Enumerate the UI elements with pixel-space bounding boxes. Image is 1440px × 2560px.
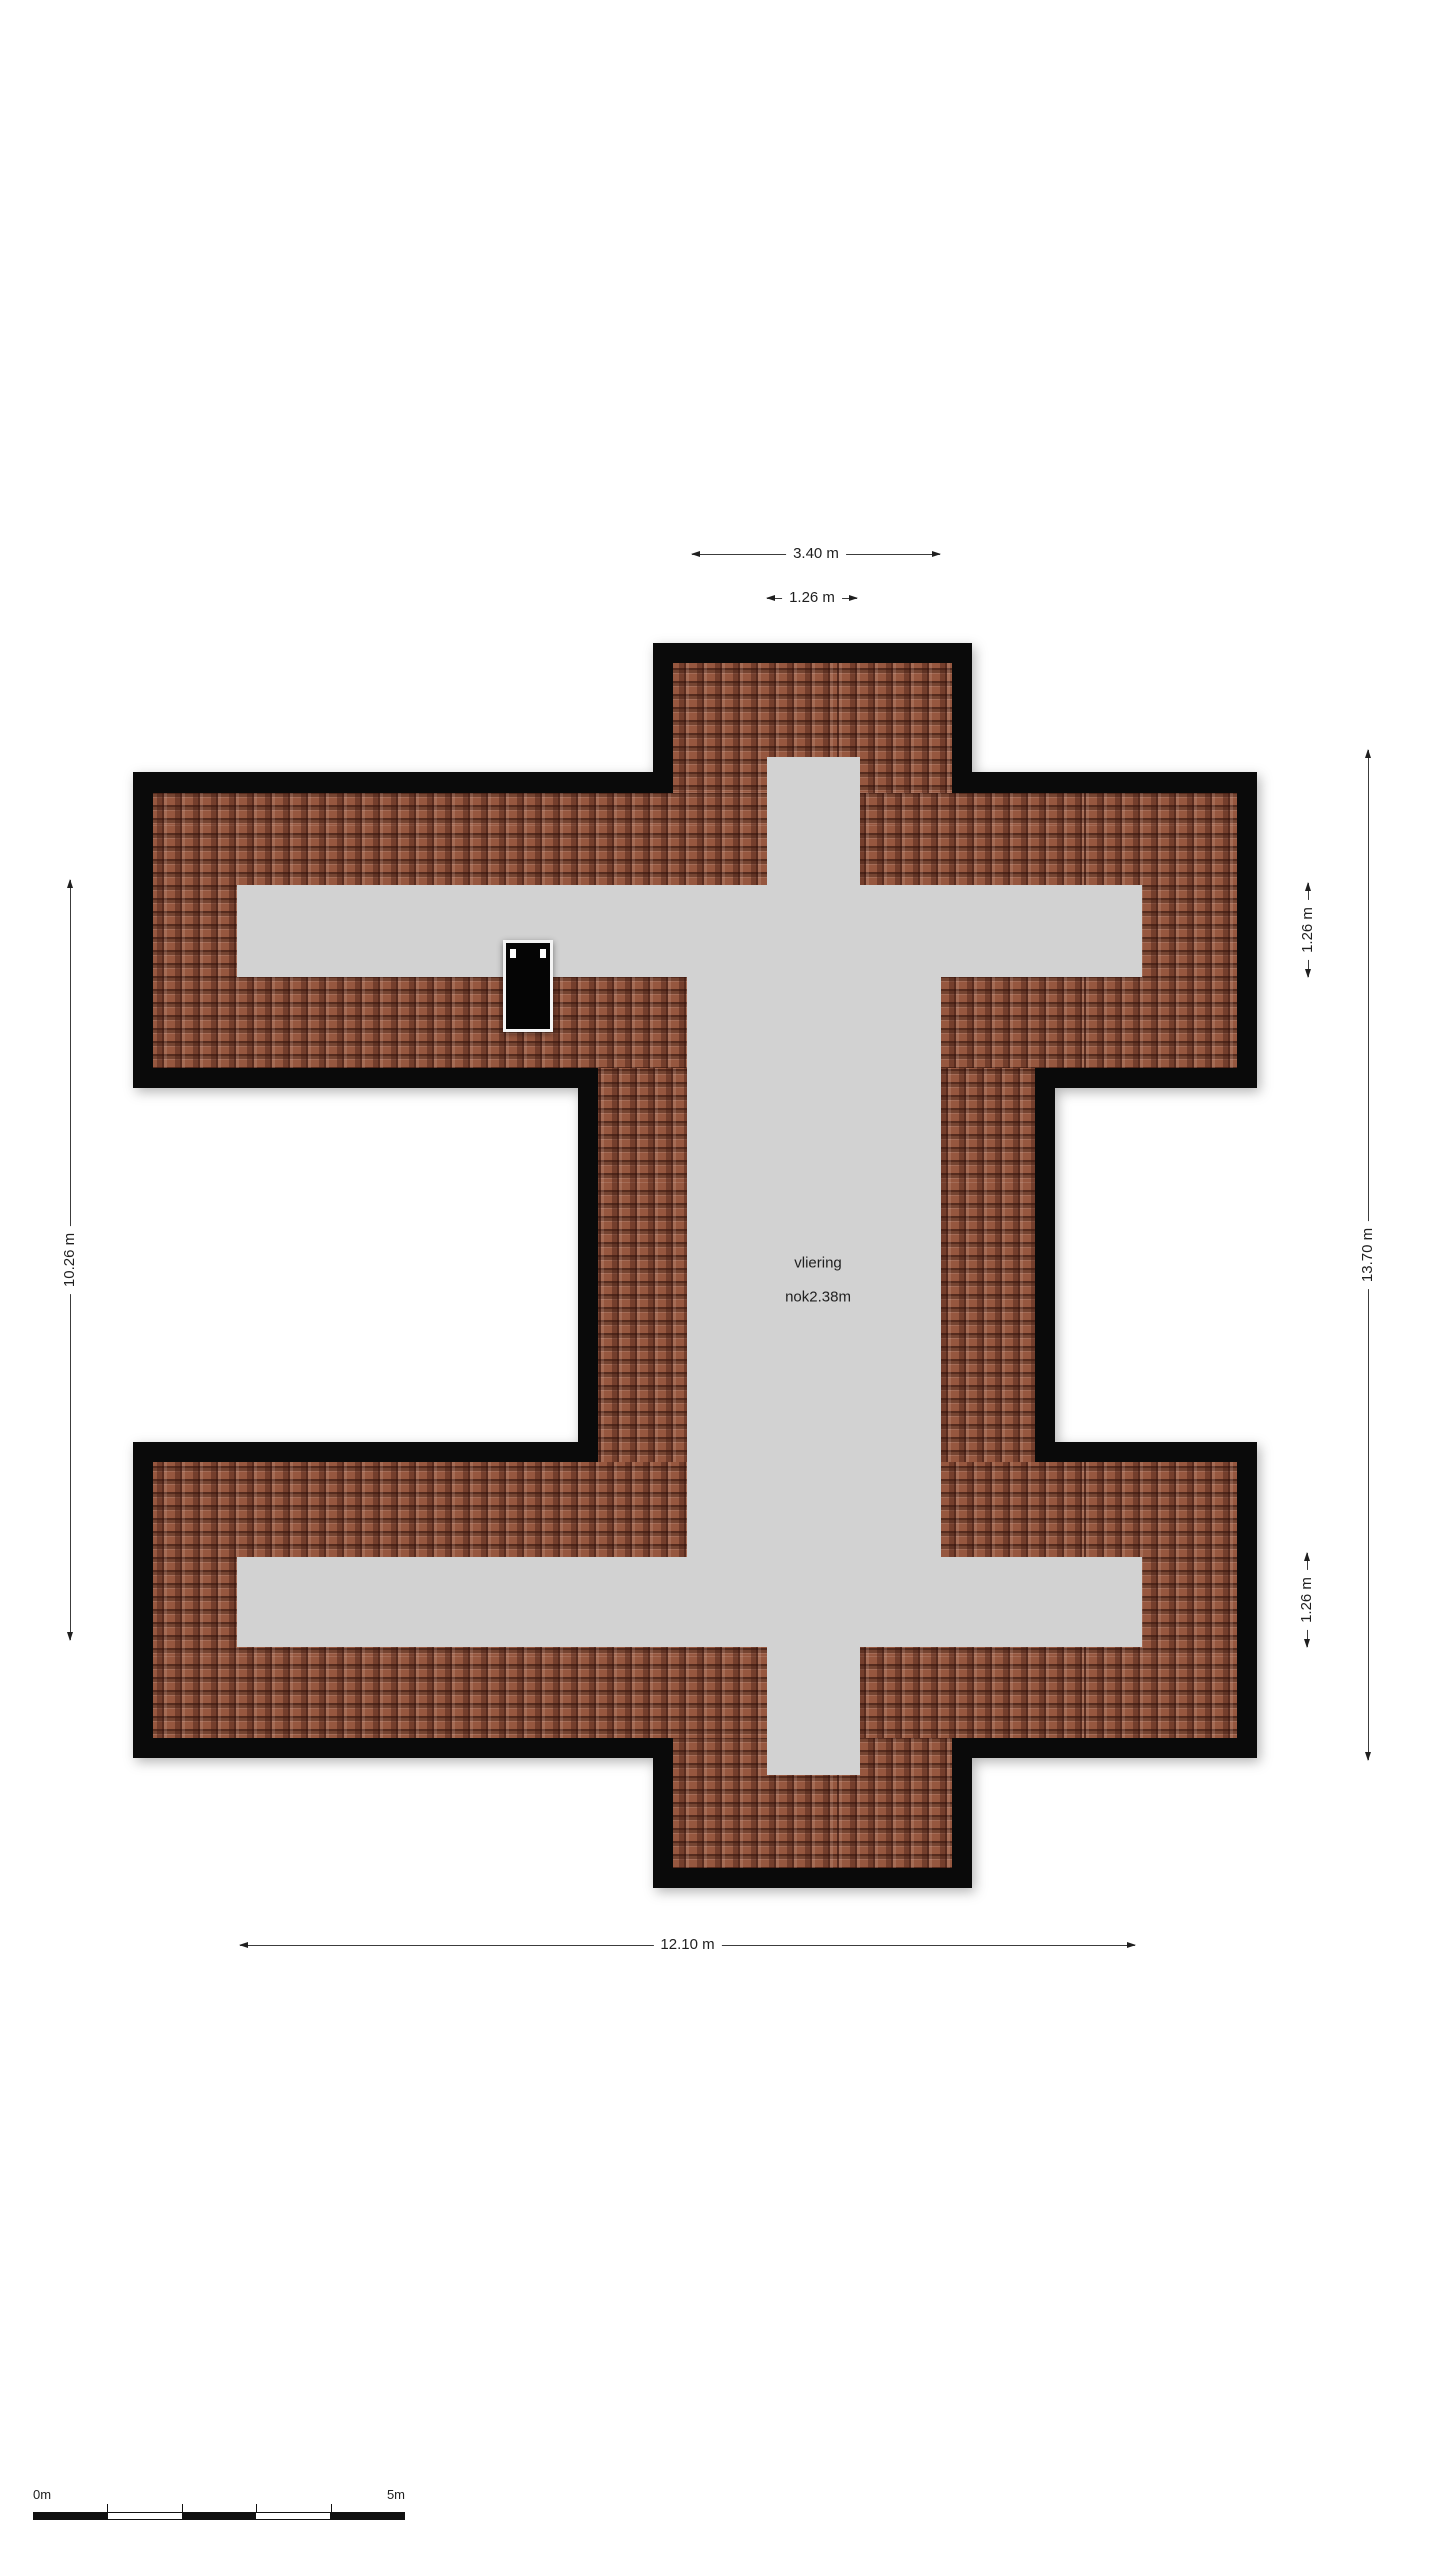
dimension-value: 13.70 m bbox=[1359, 1221, 1377, 1289]
floor-top-stub bbox=[767, 757, 860, 885]
scale-segment bbox=[182, 2513, 256, 2519]
dimension-value: 3.40 m bbox=[786, 545, 846, 563]
room-name-label: vliering bbox=[794, 1255, 842, 1272]
arrowhead-down-icon bbox=[1365, 1752, 1371, 1761]
arrowhead-right-icon bbox=[1127, 1942, 1136, 1948]
scale-segment bbox=[108, 2513, 182, 2519]
dimension-value: 1.26 m bbox=[1299, 900, 1317, 960]
scale-bar-ruler bbox=[33, 2512, 405, 2520]
arrowhead-left-icon bbox=[239, 1942, 248, 1948]
floor-bottom-band bbox=[237, 1557, 1142, 1647]
arrowhead-left-icon bbox=[766, 595, 775, 601]
scale-segment bbox=[256, 2513, 330, 2519]
scale-tick bbox=[107, 2504, 108, 2513]
arrowhead-up-icon bbox=[1365, 749, 1371, 758]
arrowhead-right-icon bbox=[932, 551, 941, 557]
dimension-value: 1.26 m bbox=[782, 589, 842, 607]
scale-segment bbox=[330, 2513, 404, 2519]
arrowhead-left-icon bbox=[691, 551, 700, 557]
scale-segment bbox=[34, 2513, 108, 2519]
ridge-height-label: nok2.38m bbox=[785, 1289, 851, 1306]
floor-plan-canvas: vliering nok2.38m 3.40 m 1.26 m 10.26 m … bbox=[0, 0, 1440, 2560]
roof-window bbox=[503, 940, 553, 1032]
arrowhead-up-icon bbox=[67, 879, 73, 888]
scale-tick bbox=[182, 2504, 183, 2513]
arrowhead-up-icon bbox=[1304, 1552, 1310, 1561]
arrowhead-right-icon bbox=[849, 595, 858, 601]
floor-top-band bbox=[237, 885, 1142, 977]
roof-window-hinge-icon bbox=[510, 949, 516, 958]
floor-bottom-stub bbox=[767, 1647, 860, 1775]
scale-tick bbox=[256, 2504, 257, 2513]
dimension-value: 10.26 m bbox=[61, 1226, 79, 1294]
roof-window-hinge-icon bbox=[540, 949, 546, 958]
arrowhead-down-icon bbox=[67, 1632, 73, 1641]
scale-bar: 0m 5m bbox=[33, 2488, 405, 2522]
arrowhead-down-icon bbox=[1304, 1639, 1310, 1648]
scale-tick bbox=[331, 2504, 332, 2513]
dimension-value: 12.10 m bbox=[653, 1936, 721, 1954]
arrowhead-up-icon bbox=[1305, 882, 1311, 891]
dimension-value: 1.26 m bbox=[1298, 1570, 1316, 1630]
scale-end-label: 5m bbox=[387, 2488, 405, 2502]
scale-start-label: 0m bbox=[33, 2488, 51, 2502]
arrowhead-down-icon bbox=[1305, 969, 1311, 978]
